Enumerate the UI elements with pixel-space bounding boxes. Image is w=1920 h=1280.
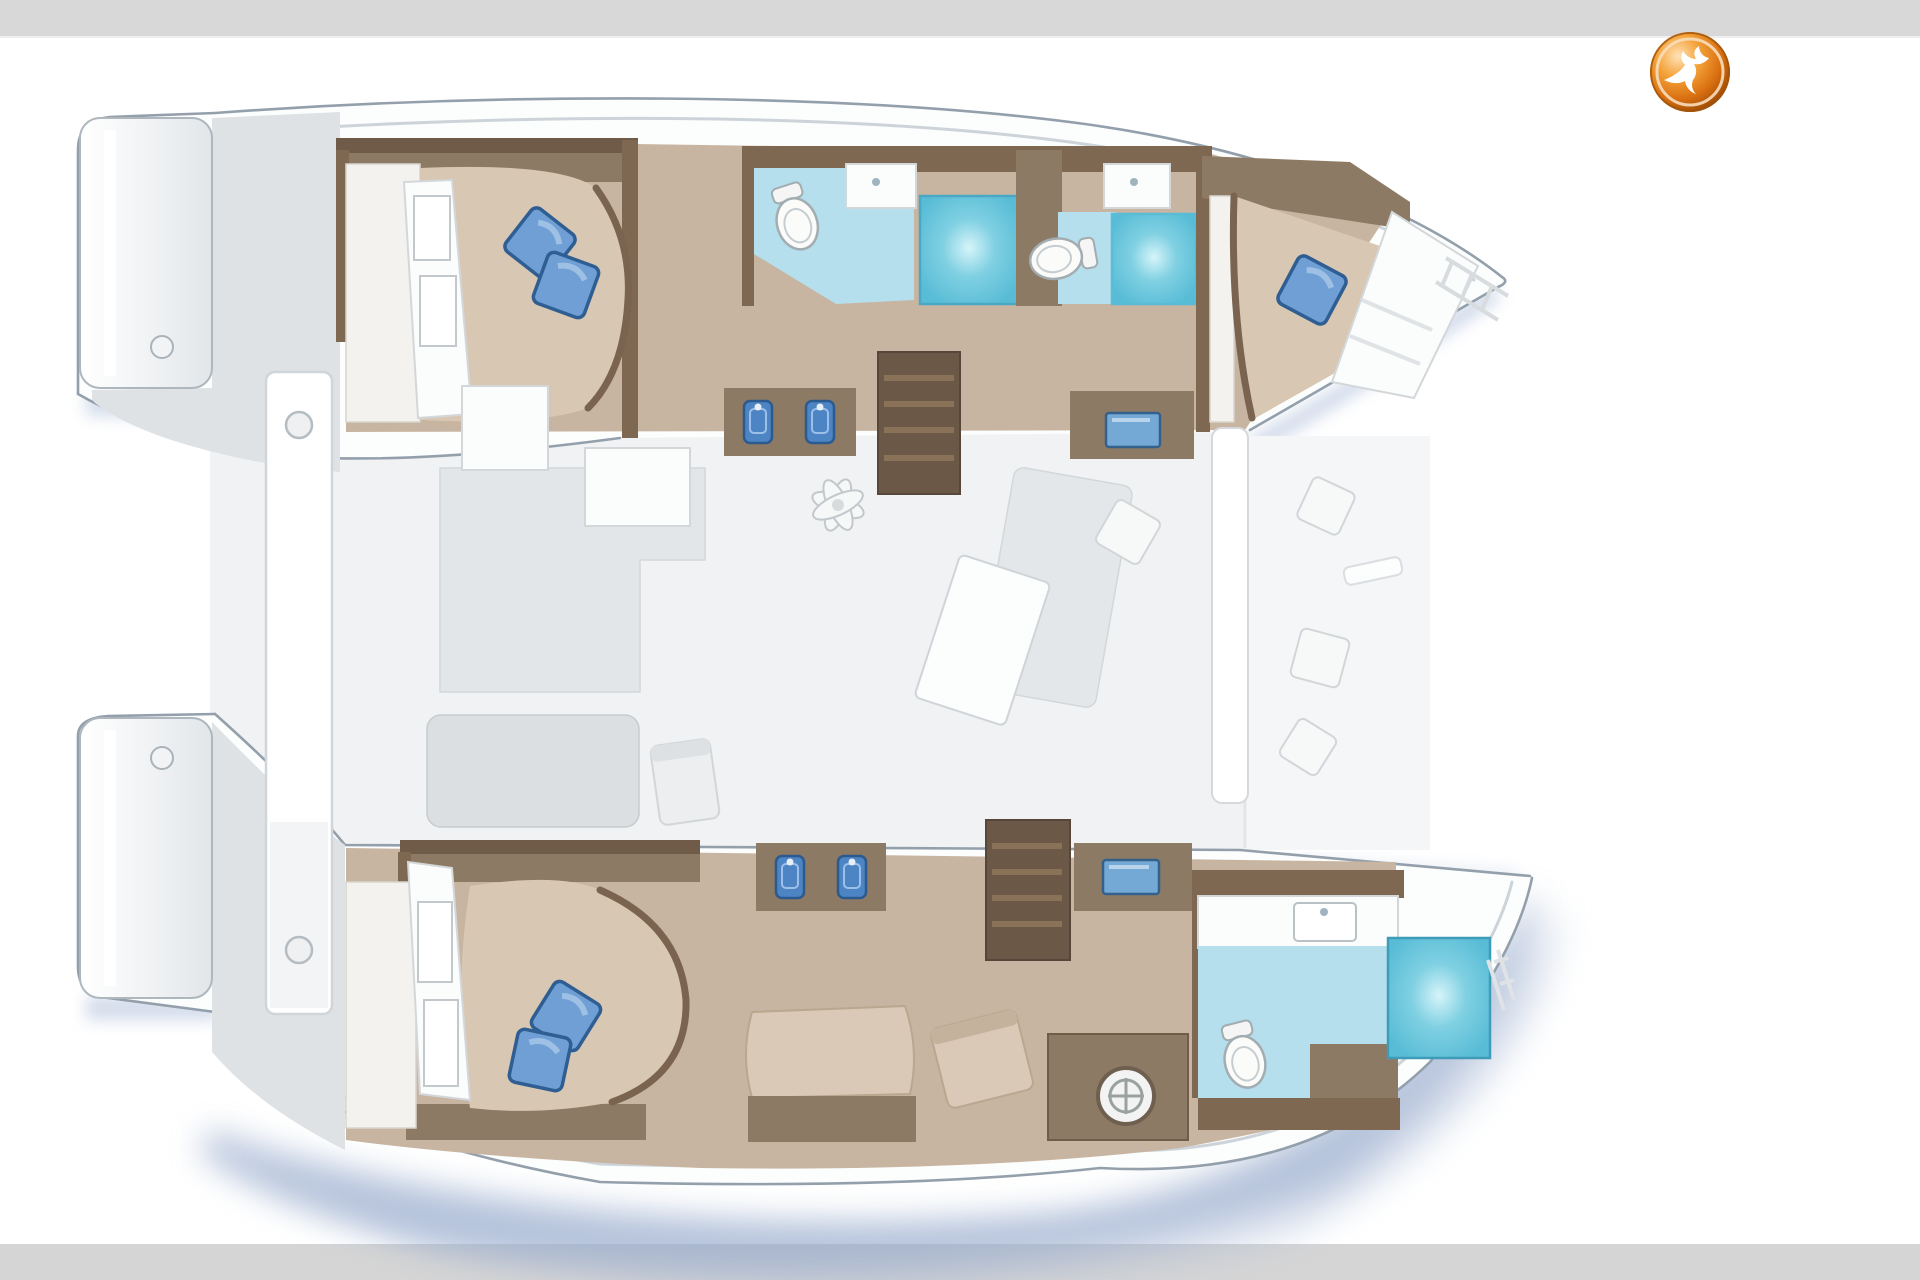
faucet-icon	[1320, 908, 1328, 916]
cabin-wall-edge	[400, 840, 700, 854]
port-winch-icon	[151, 336, 173, 358]
head-bottom-wall	[1198, 1098, 1400, 1130]
pillow-icon	[508, 1028, 572, 1092]
sink-counter	[1104, 164, 1170, 208]
cockpit-column-lower	[270, 822, 328, 1008]
chaise-base	[748, 1096, 916, 1142]
aft-saloon-bench	[427, 715, 639, 827]
column-fitting-top-icon	[286, 412, 312, 438]
shower-tray	[1112, 214, 1196, 304]
broker-logo	[1650, 32, 1730, 112]
bed-sheet	[346, 882, 416, 1128]
faucet-icon	[872, 178, 880, 186]
screenshot-page: Catamaran yacht interior layout plan, to…	[0, 0, 1920, 1280]
starboard-companionway-stairs	[986, 820, 1070, 960]
stairs-body	[986, 820, 1070, 960]
column-fitting-bottom-icon	[286, 937, 312, 963]
port-stern-platform	[80, 118, 212, 388]
head-left-wall	[742, 146, 754, 306]
port-companionway-stairs	[878, 352, 960, 494]
starboard-winch-icon	[151, 747, 173, 769]
sink-basin-icon	[806, 401, 834, 443]
head-top-wall	[1196, 870, 1404, 898]
hull-window-2	[420, 276, 456, 346]
head-cabinet	[1310, 1044, 1398, 1104]
stairs-body	[878, 352, 960, 494]
saloon-chair	[650, 738, 721, 826]
sink-basin-icon	[838, 856, 866, 898]
sink-basin-icon	[744, 401, 772, 443]
shower-tray	[1388, 938, 1490, 1058]
galley-appliance	[585, 448, 690, 526]
port-forward-cabin	[1202, 156, 1508, 422]
chaise-lounge	[746, 1006, 914, 1098]
saloon-locker	[462, 386, 548, 470]
faucet-icon	[1130, 178, 1138, 186]
heads-divider-wall	[1016, 150, 1062, 306]
cabin-top-wall-edge	[336, 138, 638, 153]
catamaran-floorplan: Catamaran yacht interior layout plan, to…	[0, 0, 1920, 1280]
shower-tray	[920, 196, 1018, 304]
forward-bench	[1212, 428, 1248, 803]
hull-window-1	[414, 196, 450, 260]
sink-counter	[846, 164, 916, 208]
sink-basin-icon	[776, 856, 804, 898]
hull-window-2	[424, 1000, 458, 1086]
starboard-stern-platform	[80, 718, 212, 998]
starboard-stern-step	[104, 730, 116, 986]
starboard-hull-interior	[346, 820, 1514, 1169]
wheel-cabinet	[1048, 1034, 1188, 1140]
port-stern-step	[104, 130, 116, 376]
hull-window-1	[418, 902, 452, 982]
port-nav-cabinet	[1070, 391, 1194, 459]
starboard-nav-cabinet	[1074, 843, 1192, 911]
